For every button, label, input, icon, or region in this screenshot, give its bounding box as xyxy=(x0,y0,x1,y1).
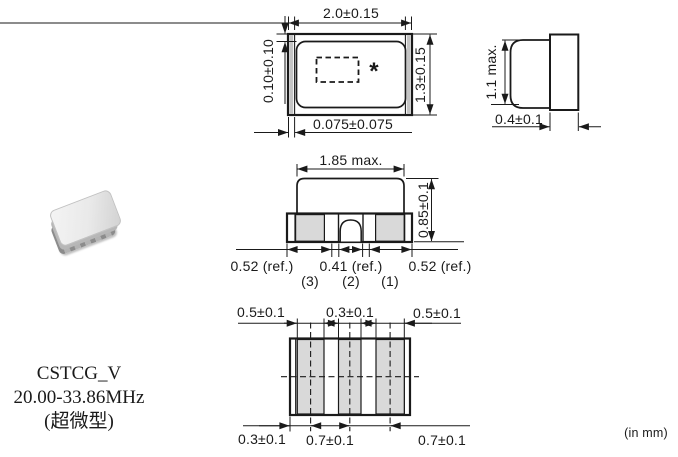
top-metal-cap-outline xyxy=(297,42,406,108)
pin-2-label: (2) xyxy=(342,274,360,288)
pad-pitch-left-label: 0.7±0.1 xyxy=(306,433,354,447)
side-height-dim-label: 1.1 max. xyxy=(484,44,498,99)
front-center-castellation xyxy=(340,220,361,242)
pad-width-left-label: 0.5±0.1 xyxy=(237,305,285,319)
pad-width-mid-label: 0.3±0.1 xyxy=(326,305,374,319)
units-note: (in mm) xyxy=(624,427,668,440)
bottom-view xyxy=(238,319,470,432)
front-height-dim-label: 0.85±0.1 xyxy=(416,182,430,238)
top-electrode-dim-label: 0.075±0.075 xyxy=(313,117,393,131)
front-span-right-label: 0.52 (ref.) xyxy=(409,259,472,273)
marking-asterisk: * xyxy=(369,60,379,84)
product-frequency-range: 20.00-33.86MHz xyxy=(6,386,152,410)
side-metal-cap-outline xyxy=(511,40,551,108)
product-package-type: (超微型) xyxy=(6,410,152,434)
front-terminal-1 xyxy=(376,215,405,242)
top-electrode-band-left xyxy=(290,35,294,114)
side-thickness-dim-label: 0.4±0.1 xyxy=(495,112,543,126)
pin-3-label: (3) xyxy=(301,274,319,288)
product-series: CSTCG_V xyxy=(6,362,152,386)
top-height-dim-label: 1.3±0.15 xyxy=(413,47,427,103)
top-electrode-band-right xyxy=(407,35,411,114)
pad-offset-label: 0.3±0.1 xyxy=(238,432,286,446)
pad-width-right-label: 0.5±0.1 xyxy=(413,306,461,320)
front-metal-cap-outline xyxy=(297,179,404,214)
top-width-dim-label: 2.0±0.15 xyxy=(323,6,379,20)
product-id-block: CSTCG_V 20.00-33.86MHz (超微型) xyxy=(6,362,152,434)
front-span-left-label: 0.52 (ref.) xyxy=(231,259,294,273)
front-terminal-3 xyxy=(296,215,325,242)
dimension-drawing-page: 2.0±0.15 0.10±0.10 1.3±0.15 0.075±0.075 … xyxy=(0,0,678,457)
top-cap-gap-dim-label: 0.10±0.10 xyxy=(261,39,275,103)
front-cap-width-dim-label: 1.85 max. xyxy=(319,153,382,167)
side-substrate-outline xyxy=(550,35,578,111)
pin-1-label: (1) xyxy=(381,274,399,288)
pad-pitch-right-label: 0.7±0.1 xyxy=(418,433,466,447)
front-span-mid-label: 0.41 (ref.) xyxy=(320,259,383,273)
